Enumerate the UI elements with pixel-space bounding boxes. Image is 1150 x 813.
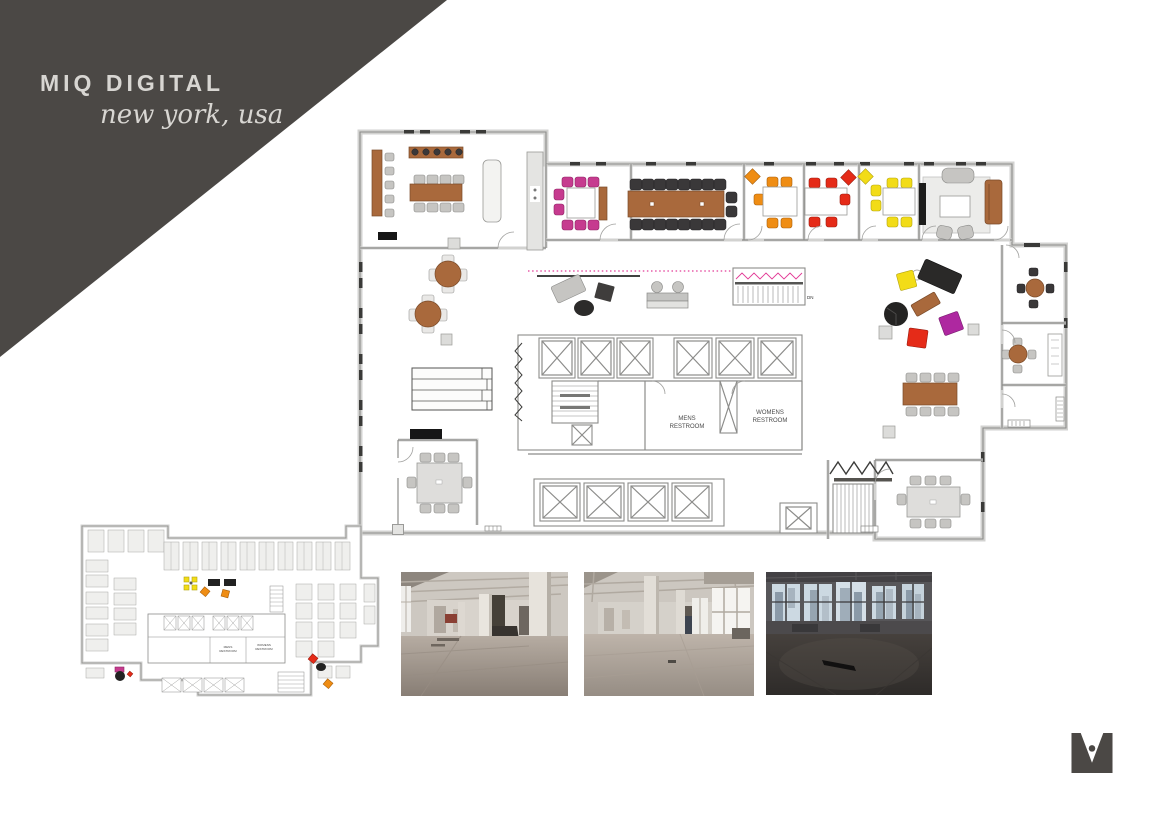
- meeting-table: [567, 188, 595, 218]
- cube-seat: [594, 282, 615, 302]
- meeting-table-southwest: [407, 453, 472, 513]
- bench: [410, 429, 442, 439]
- window-bar: [372, 150, 382, 216]
- elevator-bank-south: [534, 479, 724, 526]
- conference-room-red: [805, 170, 856, 227]
- shaft-between-restrooms: [720, 381, 737, 433]
- round-table: [429, 255, 467, 293]
- meeting-table-southeast: [897, 476, 970, 528]
- mini-womens-line2: RESTROOM: [255, 647, 273, 651]
- sideboard: [599, 187, 607, 220]
- mens-line1: MENS: [678, 416, 695, 422]
- cafe-tables: [409, 255, 492, 439]
- brand-subtitle: new york, usa: [100, 100, 283, 130]
- presentation-page: MIQ DIGITAL new york, usa: [0, 0, 1150, 813]
- kitchen-island: [483, 160, 501, 222]
- coffee-table: [940, 196, 970, 217]
- brand-title: MIQ DIGITAL: [40, 70, 224, 97]
- bench: [378, 232, 397, 240]
- mini-mens-line2: RESTROOM: [219, 649, 237, 653]
- lounge-room: [919, 168, 1002, 241]
- meeting-table-east: [903, 373, 959, 416]
- meeting-table: [763, 187, 797, 216]
- photo-1: [401, 572, 568, 696]
- photo-2: [584, 572, 754, 696]
- boardroom: [628, 179, 737, 230]
- phone-room-b: [1002, 334, 1062, 376]
- red-sign: [445, 614, 457, 623]
- plan-annotation-box: [392, 524, 404, 535]
- conference-room-orange: [745, 169, 797, 228]
- media-unit: [919, 183, 926, 225]
- mens-line2: RESTROOM: [670, 424, 705, 430]
- sofa: [917, 259, 962, 294]
- reception-desk: [647, 282, 688, 309]
- phone-room-a: [1006, 243, 1054, 308]
- logo-dot: [1089, 745, 1096, 752]
- logo-mark: [1071, 733, 1113, 773]
- service-core: MENS RESTROOM WOMENS RESTROOM: [515, 335, 802, 450]
- photo-3: [766, 572, 932, 695]
- cube-seat: [939, 311, 964, 336]
- meeting-table: [883, 188, 915, 215]
- main-floor-plan: MENS RESTROOM WOMENS RESTROOM: [356, 122, 1068, 542]
- coffee-table: [551, 274, 587, 303]
- mini-floor-plan: MENS RESTROOM WOMENS RESTROOM: [78, 520, 388, 698]
- logo-m-shape: [1071, 733, 1112, 773]
- womens-line2: RESTROOM: [753, 418, 788, 424]
- conference-room-magenta: [554, 177, 607, 230]
- south-stair: [830, 462, 893, 533]
- open-lounge-cluster: [884, 259, 964, 349]
- conference-room-yellow: [858, 169, 915, 227]
- leather-sofa: [985, 180, 1002, 224]
- cube-seat: [907, 328, 928, 348]
- small-service-room: [780, 503, 817, 533]
- coffee-table: [911, 292, 941, 317]
- core-stair: [552, 381, 598, 423]
- round-table: [409, 295, 447, 333]
- cafe-long-table: [410, 184, 462, 201]
- womens-line1: WOMENS: [756, 410, 784, 416]
- boardroom-table: [628, 191, 724, 217]
- kitchen-area: [372, 147, 543, 250]
- sofa: [942, 168, 974, 183]
- bleacher-seating: [412, 368, 492, 410]
- stair-dn-label: DN: [807, 295, 814, 300]
- internal-stair-dn: DN: [733, 268, 814, 305]
- pouf: [574, 300, 594, 316]
